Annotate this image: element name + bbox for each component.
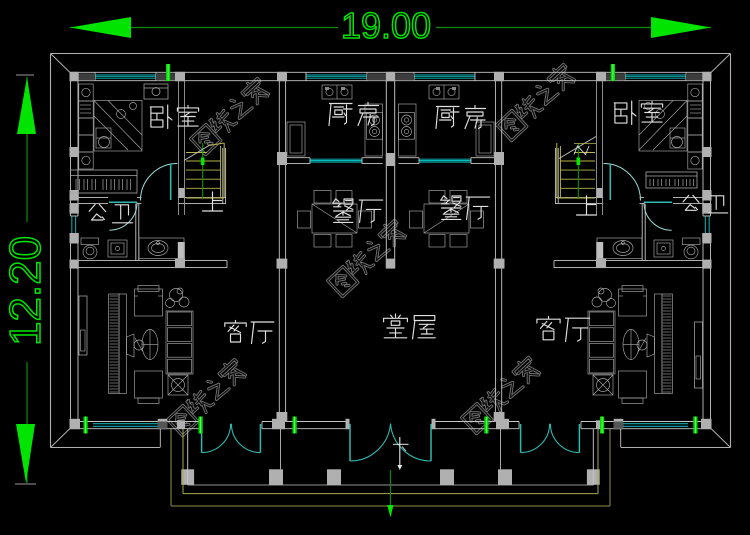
- svg-text:19.00: 19.00: [341, 5, 431, 46]
- svg-text:12.20: 12.20: [1, 236, 50, 346]
